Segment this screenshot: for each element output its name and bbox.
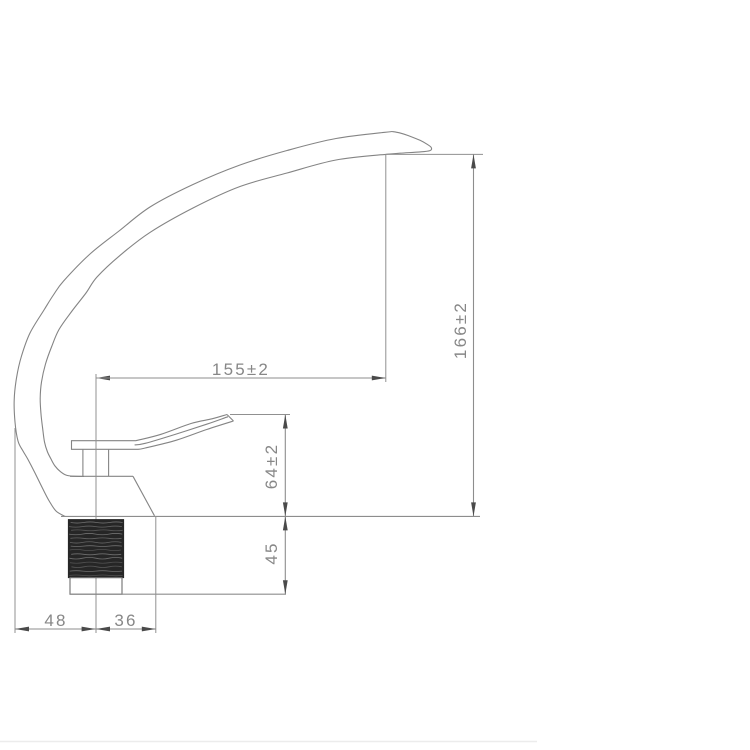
svg-text:166±2: 166±2 (451, 301, 470, 359)
svg-text:45: 45 (262, 541, 281, 564)
svg-text:155±2: 155±2 (212, 360, 270, 379)
svg-text:48: 48 (44, 611, 67, 630)
svg-text:64±2: 64±2 (262, 443, 281, 490)
svg-text:36: 36 (114, 611, 137, 630)
